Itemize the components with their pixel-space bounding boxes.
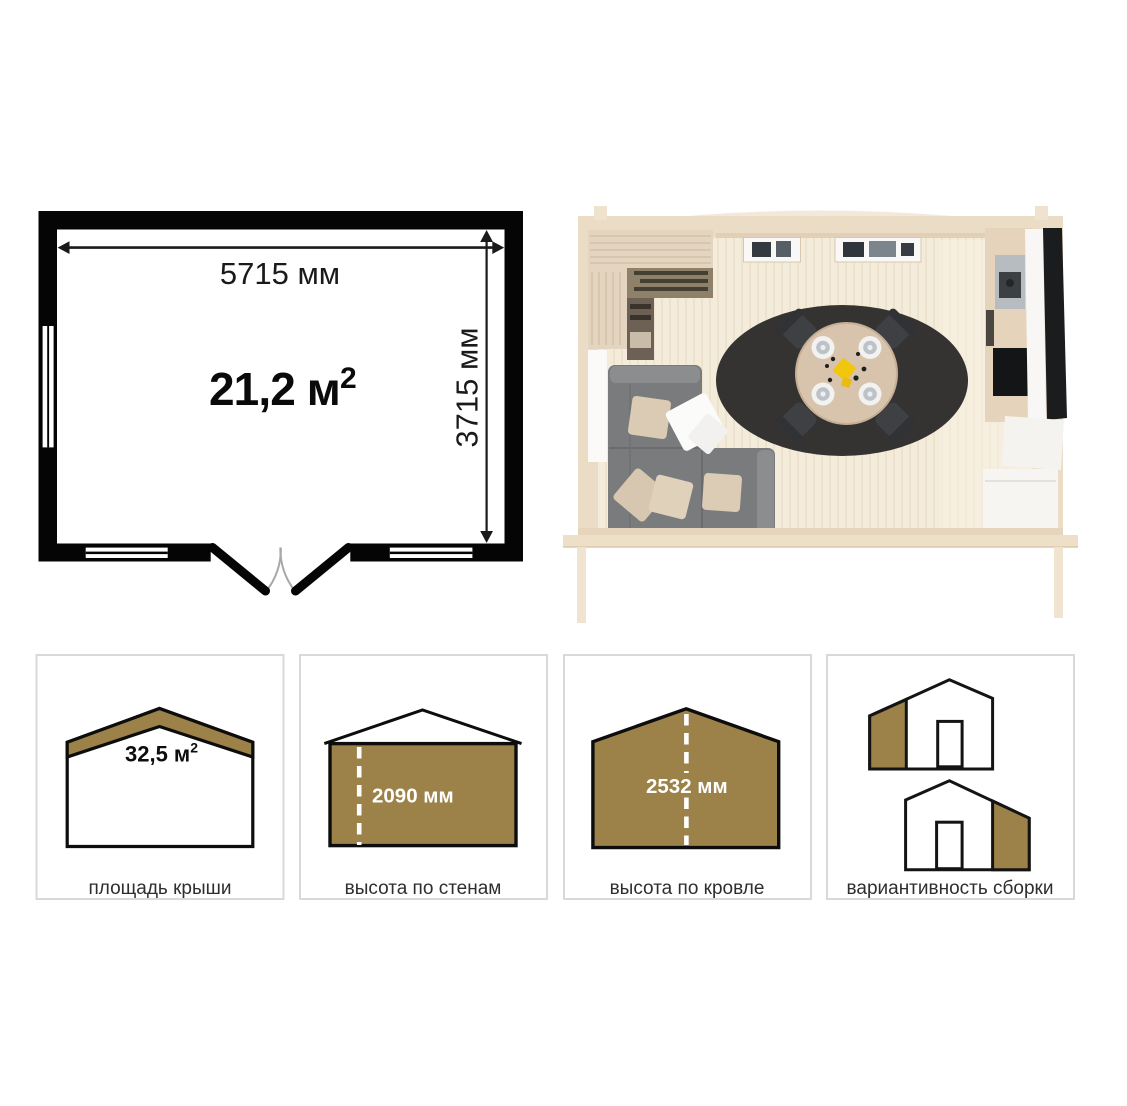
- svg-text:3715 мм: 3715 мм: [450, 327, 485, 447]
- svg-text:высота по кровле: высота по кровле: [610, 878, 765, 899]
- svg-text:площадь крыши: площадь крыши: [88, 878, 231, 899]
- svg-text:вариантивность сборки: вариантивность сборки: [847, 878, 1054, 899]
- svg-text:2532 мм: 2532 мм: [646, 775, 728, 798]
- svg-text:высота по стенам: высота по стенам: [345, 878, 502, 899]
- svg-text:32,5 м2: 32,5 м2: [125, 740, 198, 767]
- svg-text:2090 мм: 2090 мм: [372, 785, 454, 808]
- svg-text:5715 мм: 5715 мм: [220, 256, 340, 291]
- svg-text:21,2 м2: 21,2 м2: [209, 362, 356, 415]
